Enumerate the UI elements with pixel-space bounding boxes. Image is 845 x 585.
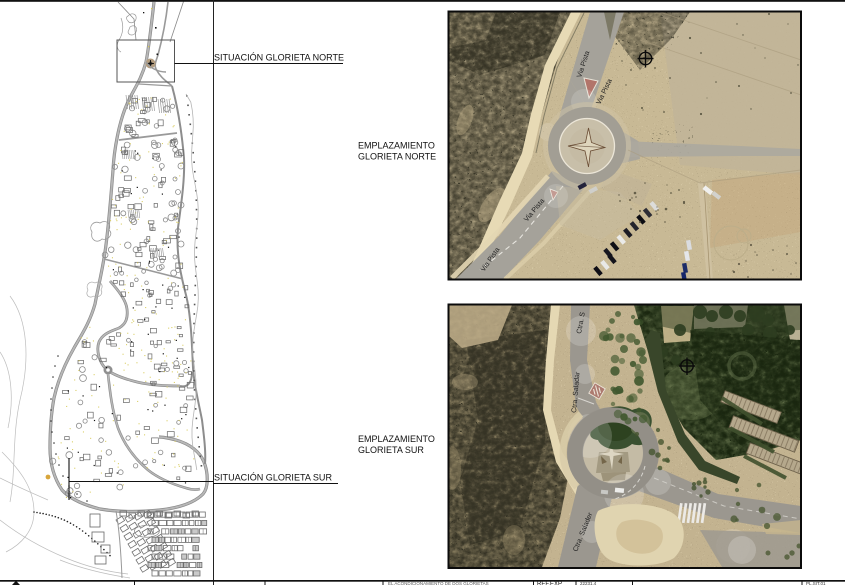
svg-text:GLORIETA SUR: GLORIETA SUR	[358, 445, 424, 455]
svg-text:SITUACIÓN GLORIETA SUR: SITUACIÓN GLORIETA SUR	[214, 473, 332, 484]
svg-text:SITUACIÓN GLORIETA NORTE: SITUACIÓN GLORIETA NORTE	[214, 53, 344, 64]
svg-text:22231.4: 22231.4	[580, 581, 597, 585]
svg-text:EL ACONDICIONAMIENTO DE DOS GL: EL ACONDICIONAMIENTO DE DOS GLORIETAS	[388, 581, 489, 585]
svg-text:REF.EXP: REF.EXP	[537, 582, 562, 585]
svg-text:PL.SIT.01: PL.SIT.01	[806, 581, 826, 585]
svg-text:GLORIETA NORTE: GLORIETA NORTE	[358, 152, 436, 162]
svg-text:EMPLAZAMIENTO: EMPLAZAMIENTO	[358, 434, 435, 444]
svg-text:EMPLAZAMIENTO: EMPLAZAMIENTO	[358, 141, 435, 151]
